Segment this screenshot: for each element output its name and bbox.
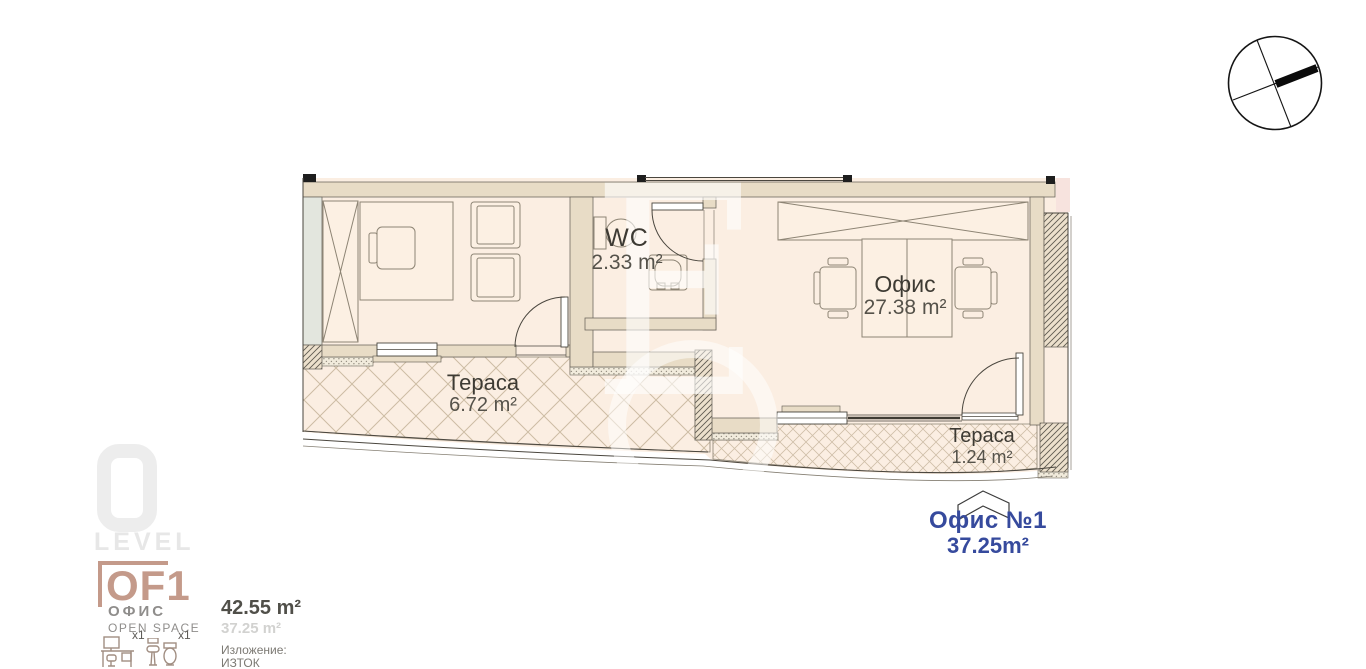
floor-plan-page: E WC 2.33 m² Офис 27.38 m² Тераса 6.72 m…	[0, 0, 1366, 669]
wc-count: x1	[178, 628, 191, 642]
level-logo-word: LEVEL	[94, 528, 195, 557]
desk-workspace-icon	[100, 636, 138, 668]
floor-plan-drawing	[0, 0, 1366, 669]
exposure-value: ИЗТОК	[221, 656, 260, 669]
unit-roof-marker	[958, 491, 1009, 520]
unit-type-label: ОФИС	[108, 603, 166, 620]
net-area-value: 37.25 m²	[221, 620, 281, 637]
exposure-label: Изложение:	[221, 643, 287, 657]
of1-logo-word: OF1	[106, 565, 191, 607]
toilet-sink-icon	[146, 638, 178, 668]
level-logo-mark	[97, 444, 157, 532]
compass-orientation-icon	[1229, 37, 1322, 130]
total-area-value: 42.55 m²	[221, 597, 301, 620]
